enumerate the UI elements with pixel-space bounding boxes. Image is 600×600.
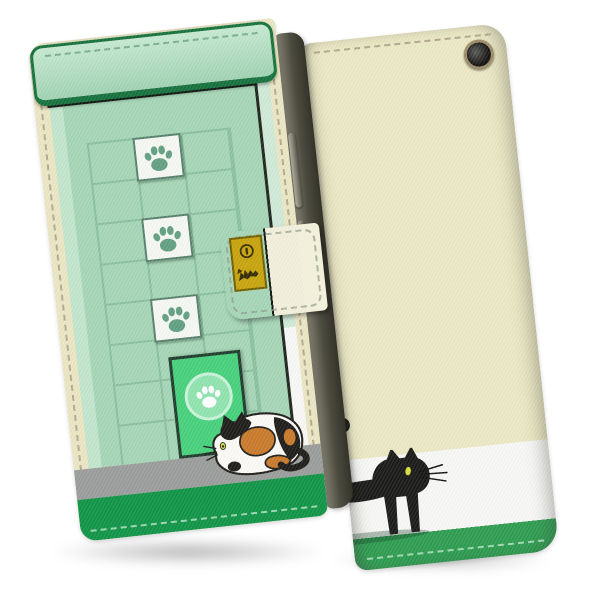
paw-tile-1 bbox=[132, 133, 184, 182]
paw-tile-3 bbox=[150, 294, 202, 343]
paw-print-icon bbox=[142, 142, 175, 172]
magnetic-clasp-strap bbox=[219, 222, 328, 320]
paw-print-icon bbox=[195, 383, 223, 410]
paw-print-icon bbox=[151, 223, 184, 253]
gold-badge bbox=[229, 235, 268, 292]
paw-tile-2 bbox=[141, 213, 193, 262]
product-photo-scene bbox=[0, 0, 600, 600]
paw-print-icon bbox=[160, 303, 193, 333]
front-case-view bbox=[28, 18, 329, 542]
coin-slot-icon bbox=[231, 237, 265, 290]
camera-hole bbox=[462, 38, 495, 71]
front-case-ground-shadow bbox=[48, 538, 328, 566]
calico-cat bbox=[199, 402, 314, 484]
